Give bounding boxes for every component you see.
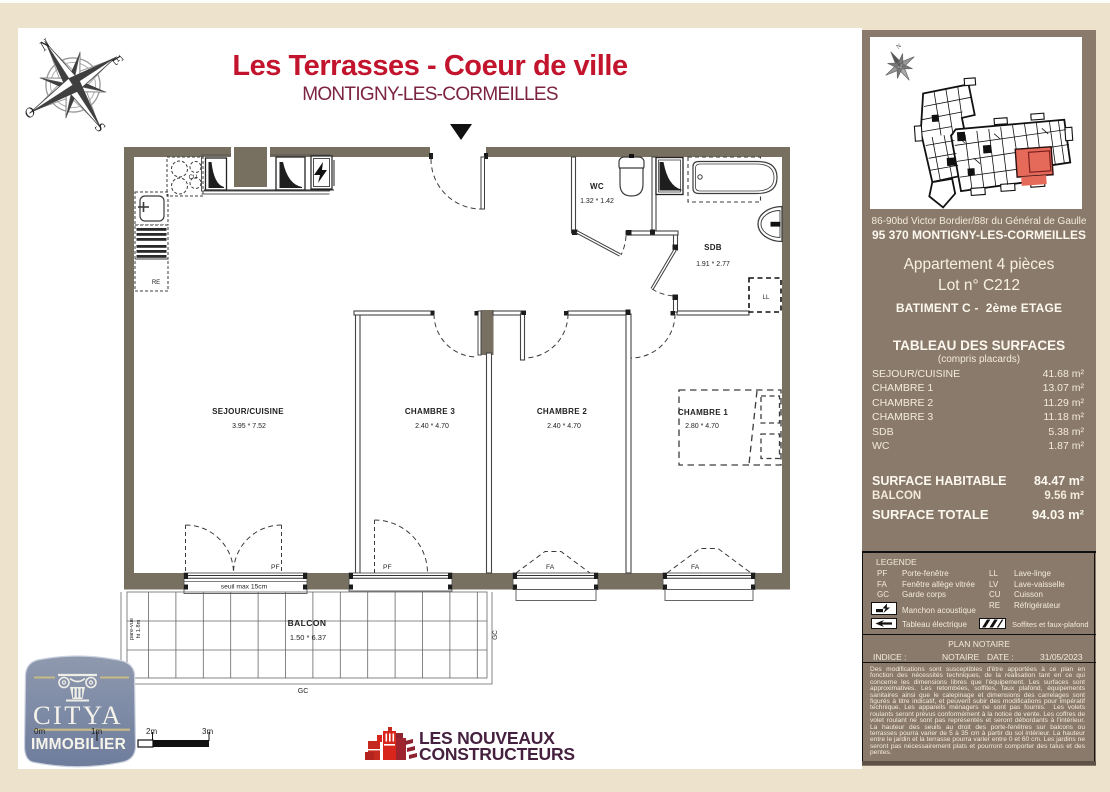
svg-text:GC: GC: [298, 688, 309, 695]
svg-text:CHAMBRE 3: CHAMBRE 3: [405, 407, 456, 416]
svg-text:CU: CU: [189, 175, 198, 181]
svg-text:WC: WC: [590, 182, 604, 191]
svg-text:pare-vue: pare-vue: [129, 618, 135, 640]
svg-text:FA: FA: [691, 564, 700, 571]
svg-text:IMMOBILIER: IMMOBILIER: [31, 736, 126, 753]
svg-text:1.32 * 1.42: 1.32 * 1.42: [580, 198, 614, 205]
svg-text:1.91 * 2.77: 1.91 * 2.77: [696, 261, 730, 268]
svg-text:ht 1.8m: ht 1.8m: [136, 619, 142, 638]
svg-text:PF: PF: [271, 564, 280, 571]
svg-text:BALCON: BALCON: [288, 618, 327, 628]
svg-text:GC: GC: [492, 630, 499, 640]
svg-text:CITYA: CITYA: [33, 700, 123, 730]
svg-text:2.40 * 4.70: 2.40 * 4.70: [415, 423, 449, 430]
svg-text:CONSTRUCTEURS: CONSTRUCTEURS: [419, 744, 575, 764]
svg-text:N: N: [896, 43, 904, 51]
svg-text:LL: LL: [763, 295, 770, 301]
svg-text:E: E: [108, 52, 126, 69]
svg-text:PF: PF: [383, 564, 392, 571]
svg-text:SEJOUR/CUISINE: SEJOUR/CUISINE: [212, 407, 284, 416]
svg-text:RE: RE: [152, 280, 160, 286]
svg-text:SDB: SDB: [704, 243, 722, 252]
svg-text:2m: 2m: [146, 727, 157, 736]
svg-text:3.95 * 7.52: 3.95 * 7.52: [232, 423, 266, 430]
svg-text:1.50 * 6.37: 1.50 * 6.37: [290, 633, 326, 642]
svg-text:seuil max 15cm: seuil max 15cm: [221, 584, 268, 591]
svg-text:FA: FA: [546, 564, 555, 571]
svg-text:0m: 0m: [34, 727, 45, 736]
svg-text:3m: 3m: [202, 727, 213, 736]
svg-text:CHAMBRE 1: CHAMBRE 1: [678, 408, 729, 417]
svg-text:S: S: [91, 120, 107, 135]
svg-text:CHAMBRE 2: CHAMBRE 2: [537, 407, 588, 416]
svg-text:2.80 * 4.70: 2.80 * 4.70: [685, 423, 719, 430]
svg-text:2.40 * 4.70: 2.40 * 4.70: [547, 423, 581, 430]
